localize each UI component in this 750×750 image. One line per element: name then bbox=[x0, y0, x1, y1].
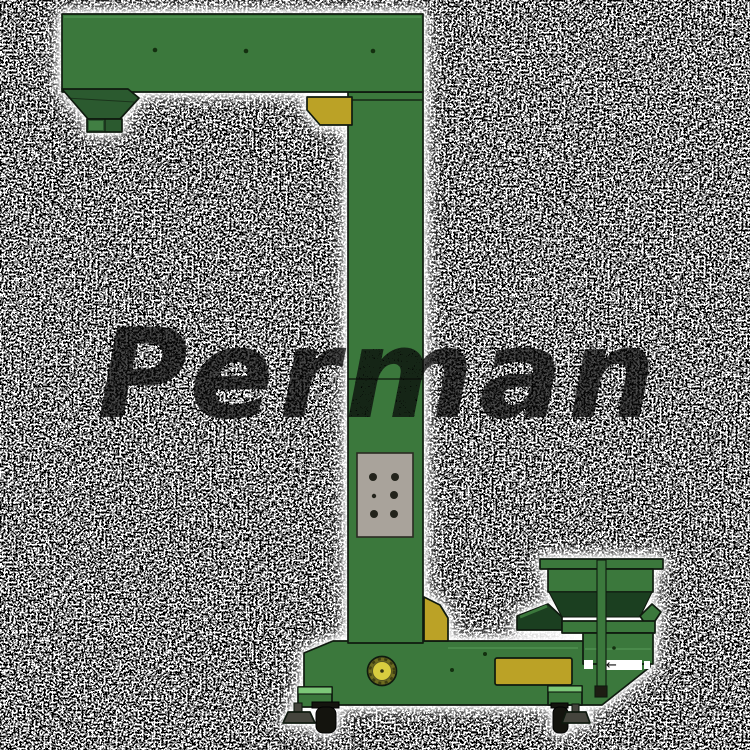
watermark-noise-overlay bbox=[0, 0, 750, 750]
watermark: Perman Perman bbox=[0, 0, 750, 750]
product-image: { "watermark": { "text": "Perman" }, "co… bbox=[0, 0, 750, 750]
